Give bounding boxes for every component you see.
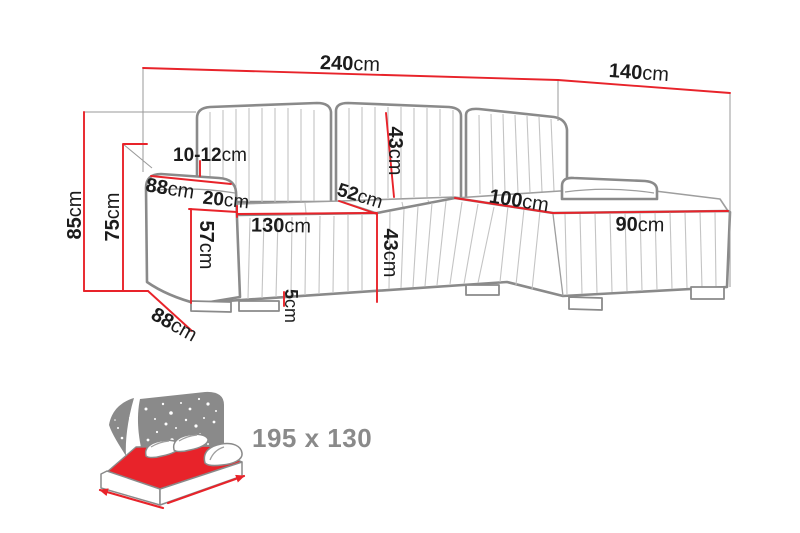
label-total-width: 240cm bbox=[320, 52, 381, 76]
label-front-height: 43cm bbox=[379, 229, 401, 278]
backrest-cushions bbox=[197, 103, 567, 202]
sleeping-size-label: 195 x 130 bbox=[252, 423, 372, 453]
label-back-cushion-height: 43cm bbox=[384, 127, 406, 176]
label-armrest-height: 75cm bbox=[102, 193, 124, 242]
label-total-height: 85cm bbox=[64, 191, 86, 240]
label-seat-width: 130cm bbox=[251, 214, 311, 237]
right-armrest bbox=[562, 178, 657, 199]
label-seat-height: 57cm bbox=[195, 221, 217, 270]
headboard-icon bbox=[109, 398, 134, 456]
label-chaise-length: 90cm bbox=[615, 214, 664, 237]
sleeping-function-icon: 195 x 130 bbox=[100, 392, 372, 508]
sofa-dimension-diagram: 240cm 140cm 85cm 75cm 10-12cm 88cm 20cm … bbox=[0, 0, 800, 533]
label-leg-height: 5cm bbox=[281, 289, 301, 323]
label-chaise-depth: 140cm bbox=[608, 60, 669, 86]
label-armrest-top-width: 10-12cm bbox=[173, 145, 247, 166]
